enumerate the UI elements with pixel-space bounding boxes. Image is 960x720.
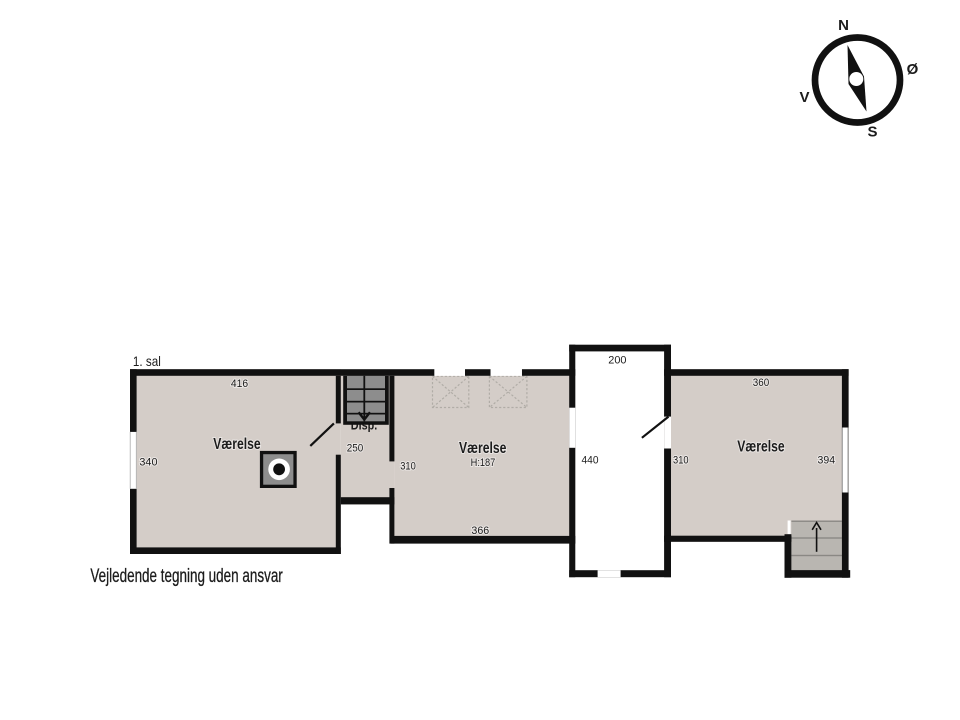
svg-text:416: 416 [231, 378, 248, 390]
svg-text:340: 340 [139, 457, 157, 469]
svg-text:V: V [799, 89, 809, 106]
svg-text:440: 440 [582, 455, 599, 467]
svg-text:S: S [867, 123, 877, 140]
svg-text:1. sal: 1. sal [133, 353, 161, 369]
svg-text:200: 200 [608, 354, 626, 366]
svg-text:310: 310 [673, 455, 689, 467]
svg-text:360: 360 [753, 377, 769, 389]
svg-text:Vejledende tegning uden ansvar: Vejledende tegning uden ansvar [90, 565, 283, 587]
svg-text:394: 394 [818, 455, 836, 467]
svg-text:Værelse: Værelse [459, 440, 506, 457]
svg-text:N: N [838, 17, 849, 34]
svg-text:Værelse: Værelse [737, 439, 784, 456]
svg-text:H:187: H:187 [471, 457, 496, 469]
svg-text:366: 366 [471, 525, 489, 537]
svg-text:Værelse: Værelse [213, 436, 260, 453]
svg-text:Ø: Ø [907, 61, 919, 78]
svg-text:250: 250 [347, 443, 364, 455]
svg-text:310: 310 [400, 461, 416, 473]
